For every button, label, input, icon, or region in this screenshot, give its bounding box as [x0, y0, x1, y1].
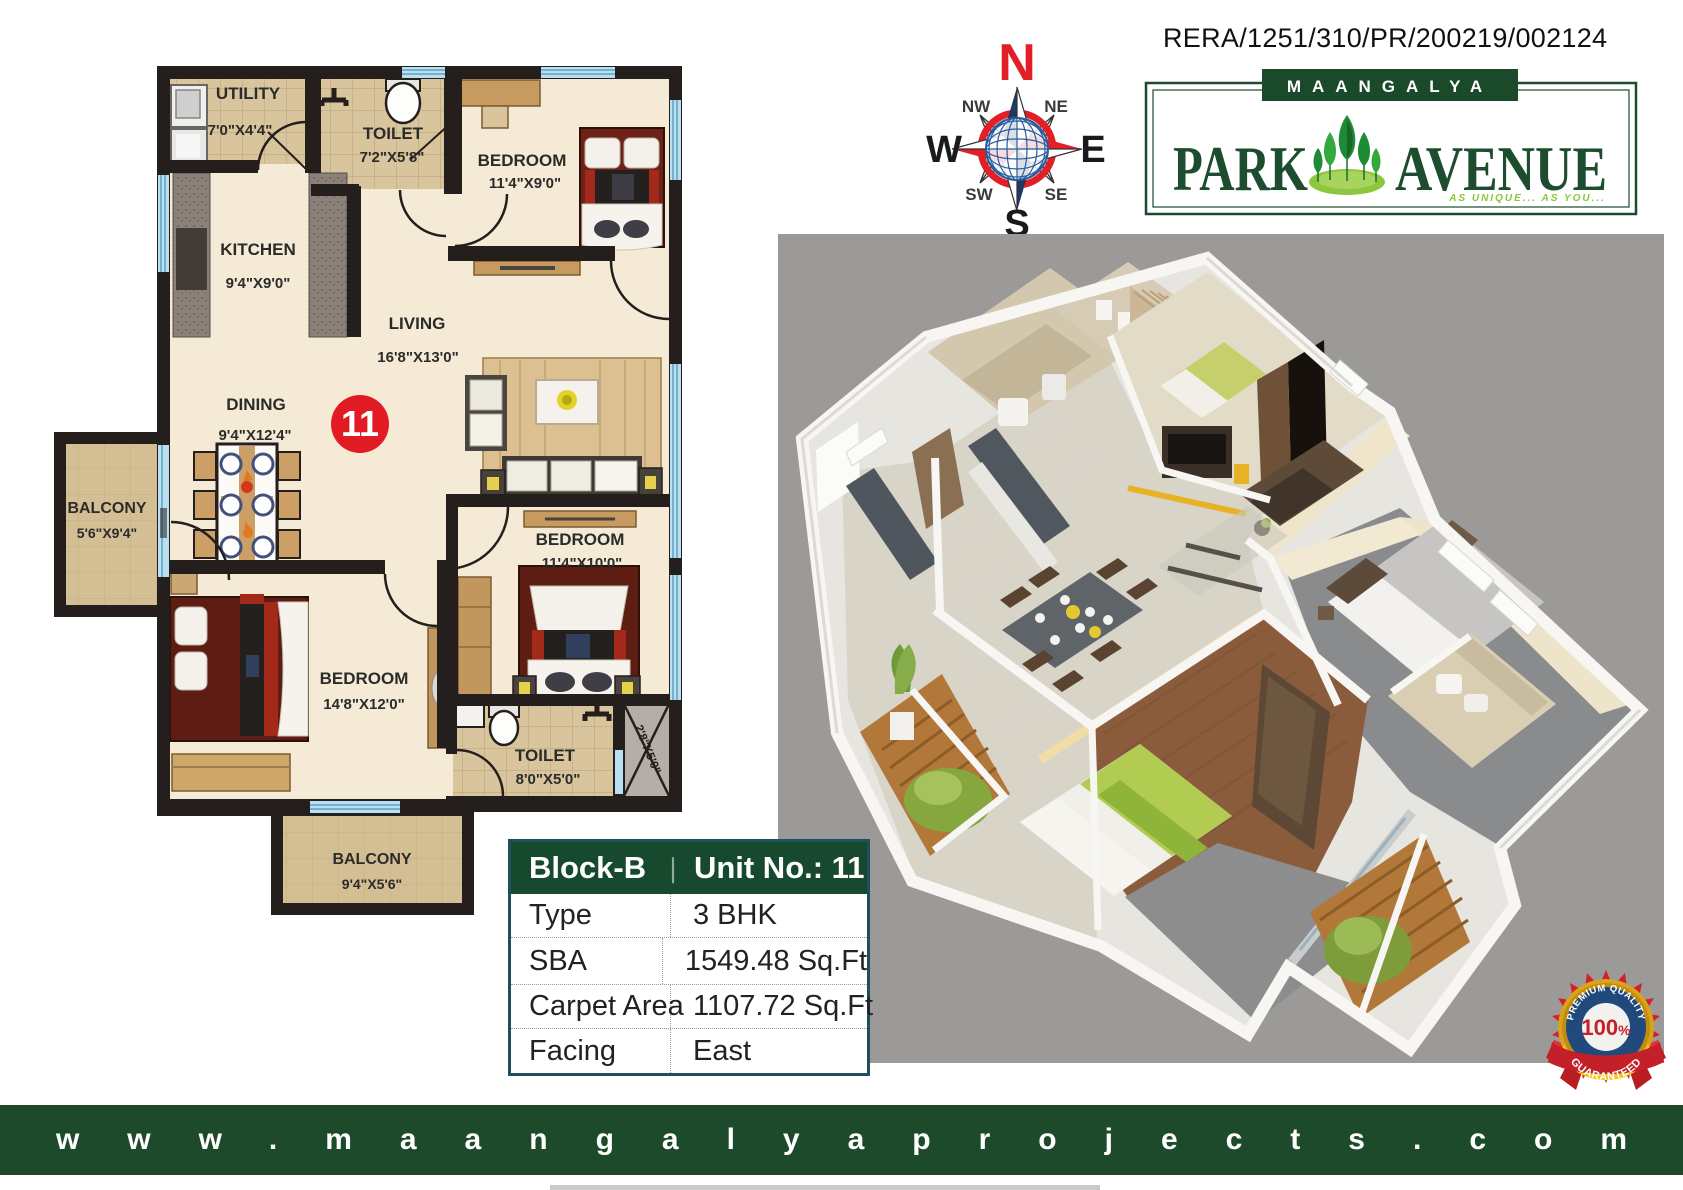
svg-text:KITCHEN: KITCHEN	[220, 240, 296, 259]
svg-text:7'0"X4'4": 7'0"X4'4"	[208, 122, 273, 139]
svg-text:SW: SW	[965, 185, 993, 204]
svg-text:E: E	[1080, 129, 1105, 171]
svg-text:9'4"X5'6": 9'4"X5'6"	[342, 876, 402, 892]
svg-text:MAANGALYA: MAANGALYA	[1287, 77, 1493, 96]
svg-text:11'4"X9'0": 11'4"X9'0"	[489, 175, 561, 192]
svg-text:DINING: DINING	[226, 395, 286, 414]
svg-text:16'8"X13'0": 16'8"X13'0"	[377, 349, 458, 366]
svg-text:9'4"X12'4": 9'4"X12'4"	[218, 427, 291, 444]
svg-text:TOILET: TOILET	[363, 124, 424, 143]
svg-text:11'4"X10'0": 11'4"X10'0"	[542, 555, 623, 572]
svg-text:BALCONY: BALCONY	[332, 851, 411, 868]
svg-text:5'6"X9'4": 5'6"X9'4"	[77, 525, 137, 541]
svg-text:LIVING: LIVING	[389, 314, 446, 333]
svg-text:NE: NE	[1044, 97, 1068, 116]
svg-text:TOILET: TOILET	[515, 746, 576, 765]
svg-text:14'8"X12'0": 14'8"X12'0"	[323, 696, 404, 713]
svg-text:W: W	[926, 129, 962, 171]
svg-text:BEDROOM: BEDROOM	[320, 669, 409, 688]
svg-text:7'2"X5'8": 7'2"X5'8"	[360, 149, 425, 166]
svg-text:N: N	[998, 34, 1036, 92]
svg-text:PARK: PARK	[1173, 133, 1308, 204]
svg-text:AS UNIQUE... AS YOU...: AS UNIQUE... AS YOU...	[1448, 193, 1606, 204]
svg-text:BEDROOM: BEDROOM	[478, 151, 567, 170]
svg-text:SE: SE	[1045, 185, 1068, 204]
svg-text:11: 11	[341, 403, 379, 444]
svg-text:BALCONY: BALCONY	[67, 500, 146, 517]
svg-text:NW: NW	[962, 97, 991, 116]
svg-text:BEDROOM: BEDROOM	[536, 530, 625, 549]
svg-text:9'4"X9'0": 9'4"X9'0"	[226, 275, 291, 292]
svg-text:UTILITY: UTILITY	[216, 84, 281, 103]
svg-text:8'0"X5'0": 8'0"X5'0"	[516, 771, 581, 788]
